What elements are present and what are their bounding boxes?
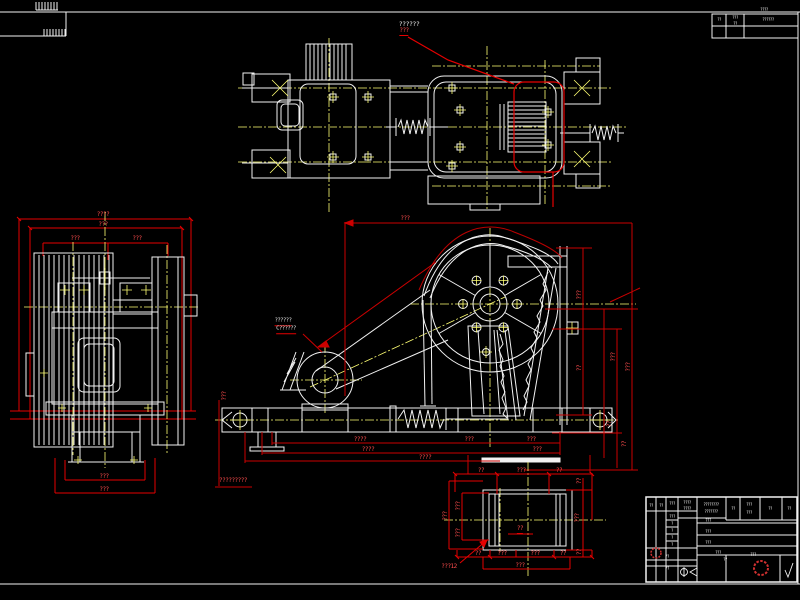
side-view-dimensions: [10, 217, 196, 493]
stamp-circle-icon: [754, 561, 768, 575]
fold-mark-icon: [36, 2, 65, 36]
projection-symbol-icon: [681, 567, 698, 577]
roughness-symbol-icon: [785, 563, 793, 577]
front-view-geometry: [222, 235, 616, 462]
side-view-geometry: [26, 253, 197, 462]
top-view: [238, 37, 628, 214]
detail-view-centerlines: [444, 462, 606, 577]
side-view-centerlines: [24, 212, 200, 468]
revision-table: [712, 14, 798, 38]
stamp-icons: [651, 548, 768, 575]
drawing: [0, 0, 800, 600]
title-block: [646, 497, 797, 582]
title-block-grid: [646, 497, 797, 582]
side-view: [10, 212, 200, 493]
cad-canvas[interactable]: ????????????????????????????????????????…: [0, 0, 800, 600]
side-view-bolt-centers: [40, 266, 152, 464]
front-view-bolt-centers: [230, 276, 610, 430]
front-view: [215, 220, 640, 487]
detail-view: [444, 462, 606, 577]
